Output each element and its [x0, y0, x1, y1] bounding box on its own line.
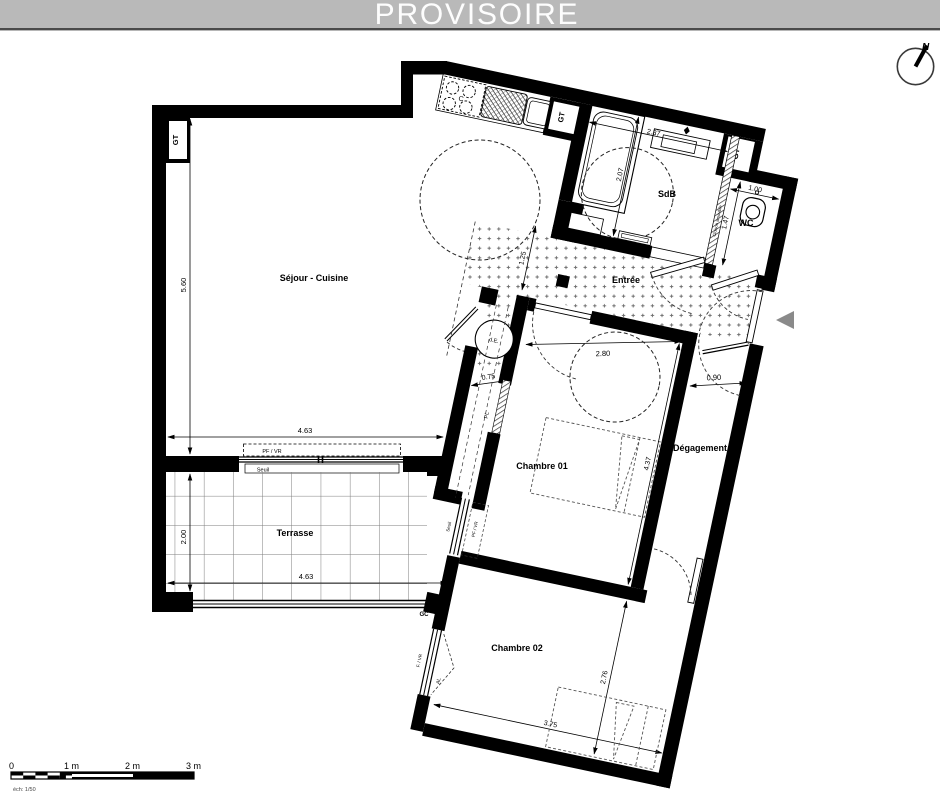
svg-text:5.60: 5.60 — [179, 278, 188, 293]
svg-text:Chambre 02: Chambre 02 — [491, 643, 543, 653]
svg-text:2.37: 2.37 — [646, 128, 661, 138]
svg-text:PF / VR: PF / VR — [471, 520, 479, 537]
svg-text:Seuil: Seuil — [445, 521, 452, 532]
svg-text:Dégagement: Dégagement — [673, 443, 727, 453]
svg-text:éch: 1/50: éch: 1/50 — [13, 787, 36, 793]
svg-text:SdB: SdB — [658, 189, 677, 199]
svg-text:2.80: 2.80 — [596, 349, 611, 358]
svg-text:PL: PL — [484, 411, 491, 419]
svg-text:Séjour - Cuisine: Séjour - Cuisine — [280, 273, 349, 283]
svg-text:0: 0 — [9, 761, 14, 771]
svg-text:PROVISOIRE: PROVISOIRE — [375, 0, 580, 31]
svg-text:2.00: 2.00 — [179, 530, 188, 545]
svg-text:GC: GC — [420, 612, 430, 618]
svg-text:4.63: 4.63 — [298, 426, 313, 435]
svg-text:C: C — [458, 95, 464, 103]
svg-text:WC: WC — [739, 218, 754, 228]
svg-text:AL: AL — [435, 677, 442, 684]
svg-text:4.37: 4.37 — [643, 456, 653, 471]
svg-text:PF / VR: PF / VR — [262, 449, 281, 455]
svg-text:Terrasse: Terrasse — [277, 528, 314, 538]
svg-text:GT: GT — [171, 134, 180, 145]
svg-text:2.76: 2.76 — [600, 670, 610, 685]
svg-text:2 m: 2 m — [125, 761, 140, 771]
svg-text:Entrée: Entrée — [612, 275, 640, 285]
svg-text:1 m: 1 m — [64, 761, 79, 771]
svg-text:1.47: 1.47 — [721, 215, 731, 230]
svg-text:N: N — [922, 42, 930, 53]
svg-text:3 m: 3 m — [186, 761, 201, 771]
svg-text:4.63: 4.63 — [299, 572, 314, 581]
svg-text:0.75: 0.75 — [481, 373, 496, 382]
svg-text:Chambre 01: Chambre 01 — [516, 461, 568, 471]
svg-text:F. / VR: F. / VR — [415, 653, 423, 668]
